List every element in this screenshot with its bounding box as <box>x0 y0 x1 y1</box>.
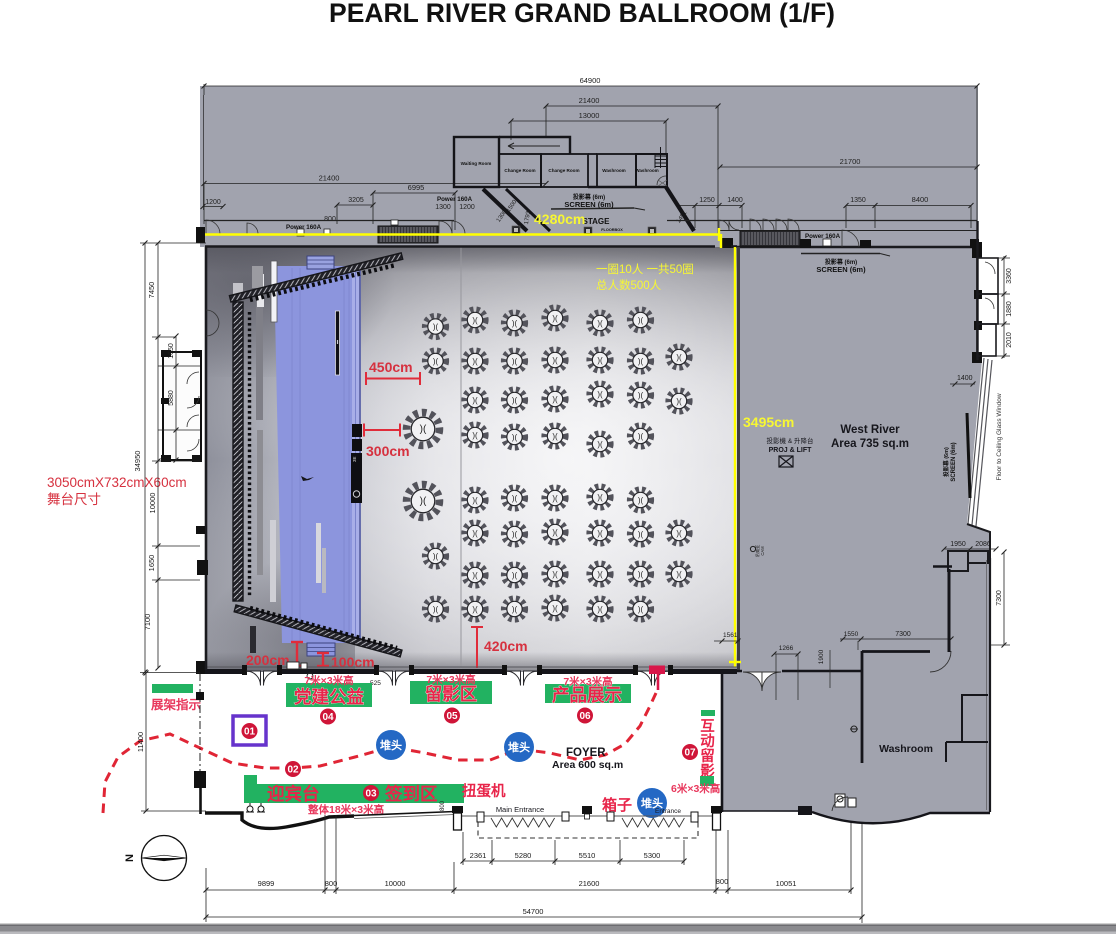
svg-text:总人数500人: 总人数500人 <box>596 278 662 292</box>
svg-text:7300: 7300 <box>996 590 1003 606</box>
svg-text:800: 800 <box>716 877 729 886</box>
svg-text:800: 800 <box>325 879 338 888</box>
svg-text:800: 800 <box>324 216 336 223</box>
svg-text:Washroom: Washroom <box>879 743 933 755</box>
svg-text:7米×3米高: 7米×3米高 <box>563 675 613 688</box>
svg-text:800: 800 <box>440 800 446 811</box>
svg-text:留影区: 留影区 <box>425 684 478 704</box>
svg-text:CAM: CAM <box>760 546 765 556</box>
svg-text:产品展示: 产品展示 <box>552 685 622 705</box>
svg-text:21700: 21700 <box>840 157 861 166</box>
svg-text:7米×3米高: 7米×3米高 <box>426 673 476 686</box>
svg-text:1350: 1350 <box>850 197 866 204</box>
svg-text:1650: 1650 <box>147 555 156 572</box>
svg-text:Washroom: Washroom <box>635 168 659 173</box>
svg-text:SCREEN (6m): SCREEN (6m) <box>564 200 614 209</box>
svg-text:N: N <box>124 854 136 862</box>
svg-text:6米×3米高: 6米×3米高 <box>671 782 721 795</box>
svg-text:堆头: 堆头 <box>380 738 402 752</box>
svg-text:1900: 1900 <box>818 649 825 664</box>
svg-text:PEARL RIVER GRAND BALLROOM (1/: PEARL RIVER GRAND BALLROOM (1/F) <box>329 0 835 28</box>
svg-text:1300: 1300 <box>435 204 451 211</box>
svg-text:7100: 7100 <box>143 614 152 631</box>
svg-text:03: 03 <box>365 789 377 800</box>
svg-text:Change Room: Change Room <box>548 168 579 173</box>
svg-text:SCREEN (6m): SCREEN (6m) <box>951 442 957 481</box>
svg-text:8400: 8400 <box>912 195 929 204</box>
svg-text:5300: 5300 <box>644 851 661 860</box>
svg-text:200cm: 200cm <box>246 652 290 668</box>
svg-text:FOYER: FOYER <box>566 747 606 759</box>
svg-text:1561: 1561 <box>723 632 738 639</box>
svg-text:54700: 54700 <box>523 907 544 916</box>
svg-text:02: 02 <box>287 765 299 776</box>
svg-text:3E: 3E <box>352 456 357 462</box>
svg-text:1650: 1650 <box>168 343 175 359</box>
svg-text:投影幕 (6m): 投影幕 (6m) <box>942 447 950 477</box>
svg-text:2361: 2361 <box>470 851 487 860</box>
svg-text:留: 留 <box>700 747 715 765</box>
svg-text:7450: 7450 <box>147 282 156 299</box>
svg-text:1266: 1266 <box>779 645 794 652</box>
svg-text:420cm: 420cm <box>484 638 528 654</box>
svg-text:64900: 64900 <box>580 76 601 85</box>
svg-text:Change Room: Change Room <box>504 168 535 173</box>
svg-text:1550: 1550 <box>844 631 859 638</box>
svg-text:7300: 7300 <box>895 631 911 638</box>
svg-text:9899: 9899 <box>258 879 275 888</box>
svg-text:1200: 1200 <box>205 199 221 206</box>
svg-text:SCREEN (6m): SCREEN (6m) <box>816 265 866 274</box>
svg-text:10000: 10000 <box>148 493 157 514</box>
svg-text:Waiting Room: Waiting Room <box>461 161 492 166</box>
svg-text:4280cm: 4280cm <box>534 211 585 227</box>
svg-text:党建公益: 党建公益 <box>294 687 364 707</box>
svg-text:1400: 1400 <box>727 197 743 204</box>
svg-text:West River: West River <box>840 424 900 436</box>
svg-text:3360: 3360 <box>1006 268 1013 284</box>
svg-text:06: 06 <box>579 711 591 722</box>
svg-text:01: 01 <box>244 727 256 738</box>
svg-text:扭蛋机: 扭蛋机 <box>462 782 506 800</box>
svg-text:Floor to Ceiling Glass Window: Floor to Ceiling Glass Window <box>996 393 1003 480</box>
svg-text:堆头: 堆头 <box>508 740 530 754</box>
svg-text:2010: 2010 <box>1006 332 1013 348</box>
svg-text:2086: 2086 <box>975 541 991 548</box>
svg-text:Area 735 sq.m: Area 735 sq.m <box>831 438 909 450</box>
svg-text:箱子: 箱子 <box>602 796 632 814</box>
svg-text:1950: 1950 <box>950 541 966 548</box>
svg-text:迎宾台: 迎宾台 <box>267 784 320 804</box>
svg-text:展架指示: 展架指示 <box>151 697 202 712</box>
svg-text:Area 600 sq.m: Area 600 sq.m <box>552 759 623 771</box>
svg-text:21400: 21400 <box>319 174 340 183</box>
svg-text:100cm: 100cm <box>331 654 375 670</box>
svg-text:07: 07 <box>684 748 696 759</box>
svg-text:04: 04 <box>322 712 334 723</box>
svg-text:05: 05 <box>446 711 458 722</box>
svg-text:300cm: 300cm <box>366 443 410 459</box>
svg-text:STAGE: STAGE <box>583 217 611 226</box>
svg-text:21600: 21600 <box>579 879 600 888</box>
svg-text:动: 动 <box>700 732 715 750</box>
svg-text:3205: 3205 <box>348 197 364 204</box>
svg-text:13000: 13000 <box>579 111 600 120</box>
svg-text:11400: 11400 <box>136 732 145 752</box>
svg-text:5880: 5880 <box>168 390 175 406</box>
svg-text:6995: 6995 <box>408 183 425 192</box>
svg-text:10051: 10051 <box>776 879 797 888</box>
svg-text:450cm: 450cm <box>369 359 413 375</box>
svg-text:FLOORBOX: FLOORBOX <box>601 228 623 232</box>
svg-text:签到区: 签到区 <box>384 784 438 804</box>
svg-text:34950: 34950 <box>133 451 142 472</box>
svg-text:5280: 5280 <box>515 851 532 860</box>
svg-text:1200: 1200 <box>459 204 475 211</box>
svg-text:7米×3米高: 7米×3米高 <box>304 674 354 687</box>
svg-text:舞台尺寸: 舞台尺寸 <box>47 492 101 507</box>
svg-text:10000: 10000 <box>385 879 406 888</box>
svg-text:Entrance: Entrance <box>655 808 681 815</box>
svg-text:21400: 21400 <box>579 96 600 105</box>
svg-text:一圈10人 一共50圈: 一圈10人 一共50圈 <box>596 263 694 276</box>
svg-text:Washroom: Washroom <box>602 168 626 173</box>
svg-text:3050cmX732cmX60cm: 3050cmX732cmX60cm <box>47 475 187 490</box>
svg-text:互: 互 <box>700 718 715 735</box>
svg-text:5510: 5510 <box>579 851 596 860</box>
svg-text:PROJ & LIFT: PROJ & LIFT <box>769 447 813 454</box>
svg-text:1250: 1250 <box>699 197 715 204</box>
svg-text:Power 160A: Power 160A <box>437 196 473 203</box>
svg-text:1880: 1880 <box>1006 301 1013 317</box>
svg-text:投影機 & 升降台: 投影機 & 升降台 <box>767 436 814 445</box>
svg-text:3495cm: 3495cm <box>743 414 794 430</box>
svg-text:1400: 1400 <box>957 375 973 382</box>
svg-text:Main Entrance: Main Entrance <box>496 805 544 814</box>
